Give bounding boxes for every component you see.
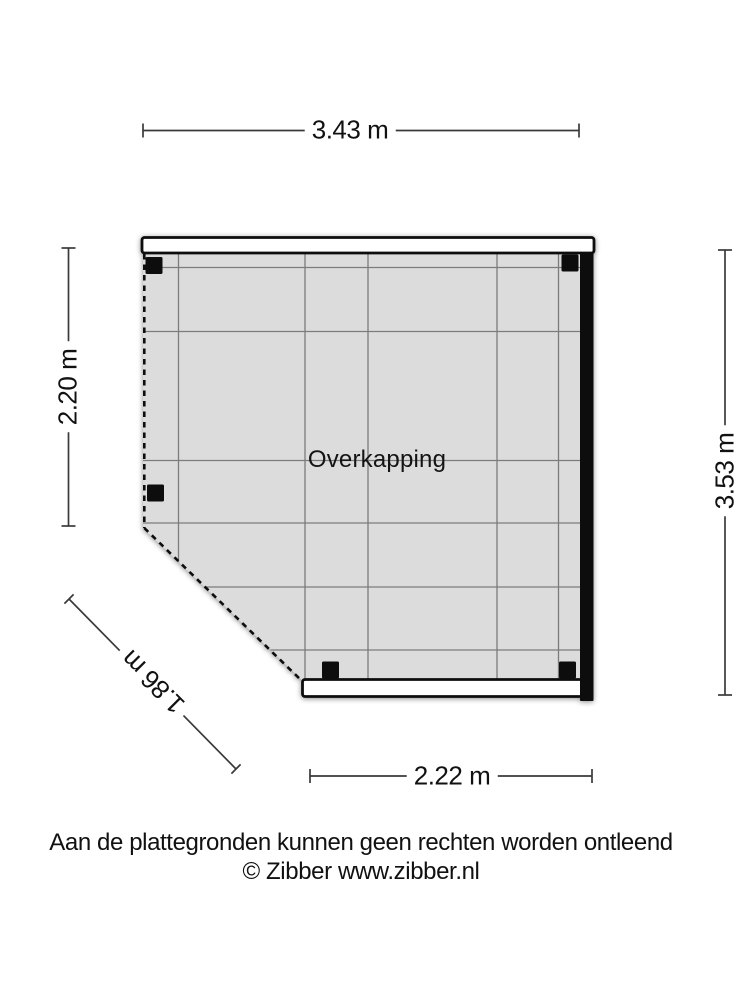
dimension-label-bottom: 2.22 m — [407, 761, 498, 792]
wall-right-solid — [580, 252, 594, 701]
post-bottom-left — [322, 662, 339, 679]
post-bottom-right — [559, 662, 576, 679]
wall-bottom-beam — [303, 680, 583, 697]
dimension-label-left: 2.20 m — [53, 342, 84, 433]
post-top-right — [562, 255, 579, 272]
footer: Aan de plattegronden kunnen geen rechten… — [0, 829, 722, 887]
post-top-left — [146, 257, 163, 274]
post-mid-left — [147, 485, 164, 502]
footer-copyright: © Zibber www.zibber.nl — [0, 858, 722, 887]
footer-disclaimer: Aan de plattegronden kunnen geen rechten… — [0, 829, 722, 858]
floor-plan-page: 3.43 m 2.20 m 3.53 m 2.22 m 1.86 m Overk… — [0, 0, 750, 1000]
dimension-label-top: 3.43 m — [305, 115, 396, 146]
dimension-label-right: 3.53 m — [710, 426, 741, 517]
room-label: Overkapping — [308, 447, 446, 473]
wall-top-beam — [142, 238, 594, 254]
